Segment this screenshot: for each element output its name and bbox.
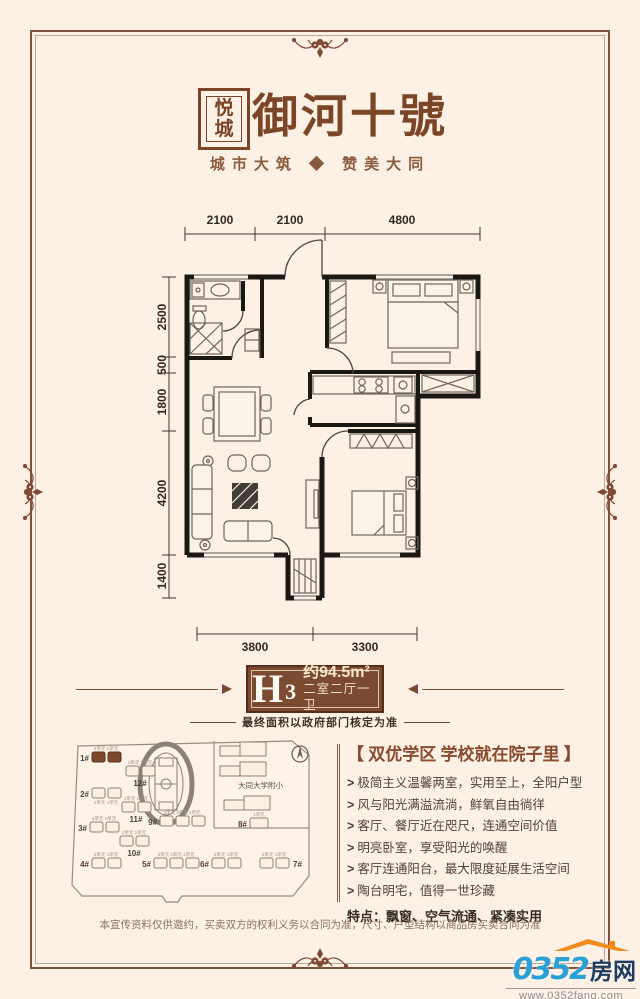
svg-text:11#: 11# — [130, 815, 143, 824]
logo-divider — [506, 988, 636, 989]
svg-text:2单元 1单元: 2单元 1单元 — [94, 799, 119, 806]
dim-left-1: 2500 — [155, 303, 169, 330]
dim-left-2: 500 — [155, 355, 169, 375]
kitchen-fixtures — [313, 376, 415, 423]
svg-text:2#: 2# — [80, 790, 89, 799]
dim-left-4: 4200 — [155, 479, 169, 506]
list-item: >风与阳光满溢流淌，鲜氧自由徜徉 — [347, 795, 585, 817]
list-item: >明亮卧室，享受阳光的唤醒 — [347, 838, 585, 860]
column-divider — [337, 744, 340, 902]
logo-name: 房网 — [590, 952, 636, 986]
bullet-text: 极简主义温馨两室，实用至上，全阳户型 — [357, 773, 582, 795]
unit-model-number: 3 — [285, 679, 296, 705]
arrow-icon-right — [408, 684, 418, 694]
svg-text:1单元: 1单元 — [253, 811, 265, 818]
dim-top-1: 2100 — [207, 213, 234, 227]
svg-text:7#: 7# — [293, 860, 302, 869]
unit-model-letter: H — [252, 672, 283, 706]
area-note: 最终面积以政府部门核定为准 — [242, 714, 398, 730]
master-bedroom-furniture — [330, 280, 473, 363]
dim-left-3: 1800 — [155, 388, 169, 415]
selling-points-list: >极简主义温馨两室，实用至上，全阳户型 >风与阳光满溢流淌，鲜氧自由徜徉 >客厅… — [347, 773, 585, 902]
bullet-text: 客厅连通阳台，最大限度延展生活空间 — [357, 859, 570, 881]
svg-text:2单元 1单元: 2单元 1单元 — [124, 795, 149, 802]
seal-char-1: 悦 — [214, 98, 233, 119]
selling-points-panel: 【 双优学区 学校就在院子里 】 >极简主义温馨两室，实用至上，全阳户型 >风与… — [347, 740, 585, 925]
dining-furniture — [203, 387, 271, 441]
flyer-canvas: 悦 城 御河十號 城市大筑 ◆ 赞美大同 2100 2100 4800 2500… — [0, 0, 640, 999]
bullet-arrow: > — [347, 773, 354, 795]
unit-layout: 二室二厅一卫 — [303, 681, 378, 713]
svg-text:2单元 1单元: 2单元 1单元 — [92, 815, 117, 822]
dim-top-3: 4800 — [389, 213, 416, 227]
logo-number: 0352 — [513, 956, 589, 984]
divider-line-left — [76, 689, 218, 690]
selling-points-headline: 【 双优学区 学校就在院子里 】 — [347, 740, 585, 765]
dim-left-5: 1400 — [155, 562, 169, 589]
bathroom-fixtures — [190, 281, 259, 354]
bullet-text: 客厅、餐厅近在咫尺，连通空间价值 — [357, 816, 557, 838]
second-bedroom-furniture — [350, 434, 418, 549]
bullet-arrow: > — [347, 881, 354, 903]
seal-char-2: 城 — [214, 119, 233, 140]
svg-text:5#: 5# — [142, 860, 151, 869]
svg-text:3#: 3# — [78, 824, 87, 833]
floorplan-drawing: 2100 2100 4800 2500 500 1800 4200 1400 3… — [148, 203, 493, 655]
svg-text:10#: 10# — [127, 849, 141, 858]
bullet-text: 陶台明宅，值得一世珍藏 — [357, 881, 495, 903]
list-item: >陶台明宅，值得一世珍藏 — [347, 881, 585, 903]
arrow-icon-left — [222, 684, 232, 694]
hall-closet — [422, 375, 474, 392]
unit-type-badge: H 3 约94.5m² 二室二厅一卫 — [246, 665, 384, 713]
bullet-text: 风与阳光满溢流淌，鲜氧自由徜徉 — [357, 795, 545, 817]
dim-bottom-1: 3800 — [242, 640, 269, 654]
bullet-text: 明亮卧室，享受阳光的唤醒 — [357, 838, 507, 860]
list-item: >客厅连通阳台，最大限度延展生活空间 — [347, 859, 585, 881]
flourish-ornament-left — [21, 462, 47, 522]
svg-text:1#: 1# — [80, 754, 89, 763]
list-item: >客厅、餐厅近在咫尺，连通空间价值 — [347, 816, 585, 838]
svg-text:8#: 8# — [238, 820, 247, 829]
note-line-left — [190, 722, 236, 723]
flourish-ornament-bottom — [290, 944, 350, 970]
bullet-arrow: > — [347, 795, 354, 817]
watermark-logo: 0352 房网 www.0352fang.com — [506, 938, 636, 999]
svg-text:2单元 1单元: 2单元 1单元 — [262, 851, 287, 858]
bullet-arrow: > — [347, 838, 354, 860]
svg-text:2单元 1单元: 2单元 1单元 — [94, 745, 119, 752]
svg-text:6#: 6# — [200, 860, 209, 869]
dim-bottom-2: 3300 — [352, 640, 379, 654]
svg-text:3单元 2单元 1单元: 3单元 2单元 1单元 — [157, 851, 195, 858]
dim-top-2: 2100 — [277, 213, 304, 227]
svg-text:2单元 1单元: 2单元 1单元 — [128, 759, 153, 766]
svg-text:2单元 1单元: 2单元 1单元 — [214, 851, 239, 858]
bullet-arrow: > — [347, 859, 354, 881]
divider-line-right — [422, 689, 564, 690]
svg-text:12#: 12# — [133, 779, 147, 788]
svg-text:9#: 9# — [148, 818, 157, 827]
brand-seal: 悦 城 — [198, 88, 250, 150]
living-room-furniture — [192, 455, 319, 550]
flourish-ornament-top — [290, 36, 350, 62]
svg-text:3单元 2单元 1单元: 3单元 2单元 1单元 — [163, 809, 201, 816]
svg-text:4#: 4# — [80, 860, 89, 869]
unit-area: 约94.5m² — [303, 665, 378, 681]
school-label: 大同大学附小 — [238, 780, 283, 790]
roof-icon — [506, 938, 636, 952]
project-title: 御河十號 — [252, 80, 502, 146]
note-line-right — [404, 722, 450, 723]
logo-url: www.0352fang.com — [506, 990, 636, 999]
site-map: 大同大学附小 2单元 1单元 1# 2单元 1单元 12# 2单元 1单元 2#… — [62, 736, 326, 922]
balcony-equipment — [294, 559, 316, 593]
project-slogan: 城市大筑 ◆ 赞美大同 — [150, 153, 490, 174]
disclaimer-text: 本宣传资料仅供邀约，买卖双方的权利义务以合同为准，尺寸、户型结构以商品房买卖合同… — [70, 917, 570, 932]
area-note-row: 最终面积以政府部门核定为准 — [150, 714, 490, 730]
svg-text:2单元 1单元: 2单元 1单元 — [122, 829, 147, 836]
list-item: >极简主义温馨两室，实用至上，全阳户型 — [347, 773, 585, 795]
svg-text:2单元 1单元: 2单元 1单元 — [94, 851, 119, 858]
bullet-arrow: > — [347, 816, 354, 838]
flourish-ornament-right — [593, 462, 619, 522]
